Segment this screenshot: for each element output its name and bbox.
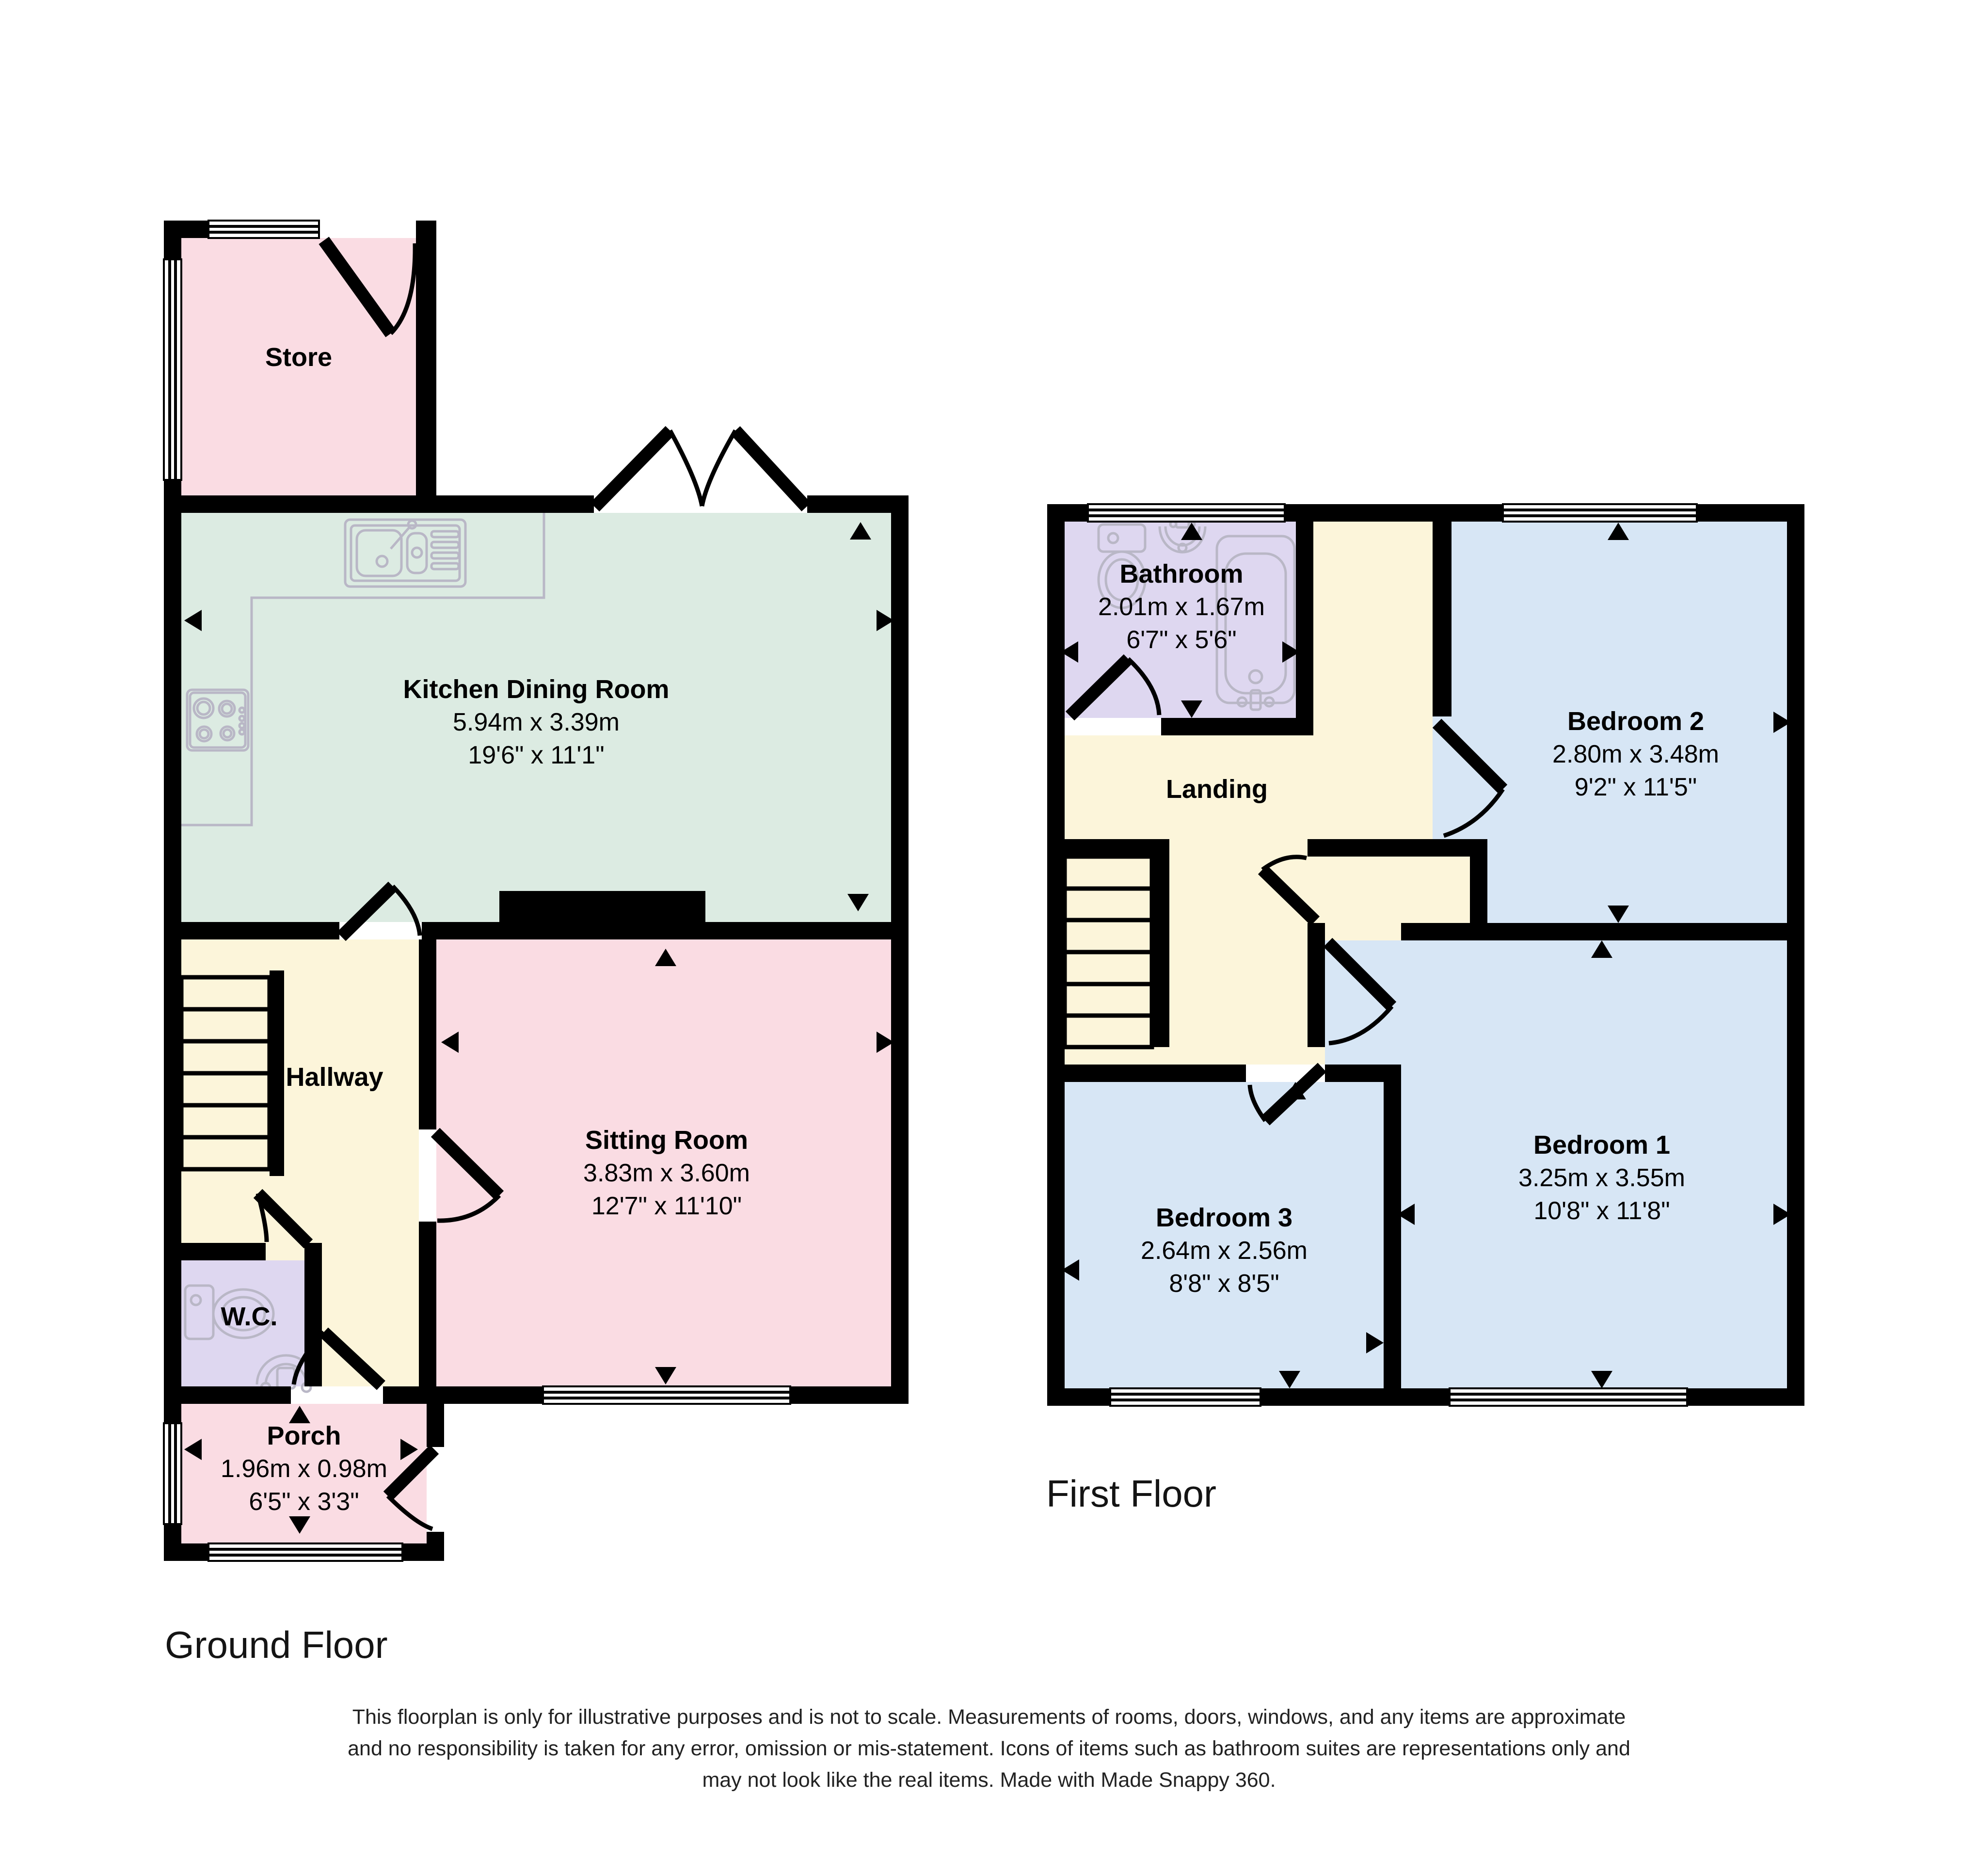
disclaimer-line: This floorplan is only for illustrative … [213, 1701, 1765, 1733]
window [1110, 1388, 1260, 1406]
window [208, 221, 319, 238]
room-label-bedroom-3: Bedroom 3 2.64m x 2.56m 8'8" x 8'5" [1141, 1201, 1308, 1300]
floorplan-page: Store Kitchen Dining Room 5.94m x 3.39m … [0, 0, 1978, 1876]
window [208, 1543, 402, 1561]
disclaimer-text: This floorplan is only for illustrative … [213, 1701, 1765, 1796]
landing-area [1325, 857, 1470, 923]
room-label-bedroom-2: Bedroom 2 2.80m x 3.48m 9'2" x 11'5" [1552, 705, 1719, 804]
window [164, 259, 181, 480]
window [1088, 504, 1285, 522]
room-label-sitting-room: Sitting Room 3.83m x 3.60m 12'7" x 11'10… [583, 1124, 750, 1223]
window [1503, 504, 1697, 522]
disclaimer-line: may not look like the real items. Made w… [213, 1765, 1765, 1796]
room-label-wc: W.C. [221, 1300, 278, 1333]
window [543, 1386, 790, 1404]
landing-area [1313, 522, 1433, 735]
bedroom2-area [1487, 839, 1787, 923]
window [1450, 1388, 1687, 1406]
ground-floor-plan [164, 221, 909, 1561]
room-label-bedroom-1: Bedroom 1 3.25m x 3.55m 10'8" x 11'8" [1518, 1129, 1685, 1227]
door-swing [595, 430, 702, 507]
room-label-store: Store [265, 341, 332, 374]
window [164, 1423, 181, 1524]
room-label-landing: Landing [1166, 773, 1268, 806]
room-label-bathroom: Bathroom 2.01m x 1.67m 6'7" x 5'6" [1098, 557, 1265, 656]
first-floor-title: First Floor [1046, 1472, 1216, 1516]
floorplan-graphics [0, 0, 1978, 1876]
room-label-kitchen-dining-room: Kitchen Dining Room 5.94m x 3.39m 19'6" … [403, 673, 670, 772]
room-label-porch: Porch 1.96m x 0.98m 6'5" x 3'3" [221, 1419, 387, 1518]
door-swing [702, 430, 806, 507]
disclaimer-line: and no responsibility is taken for any e… [213, 1733, 1765, 1765]
ground-floor-title: Ground Floor [165, 1623, 388, 1667]
room-label-hallway: Hallway [286, 1061, 383, 1094]
